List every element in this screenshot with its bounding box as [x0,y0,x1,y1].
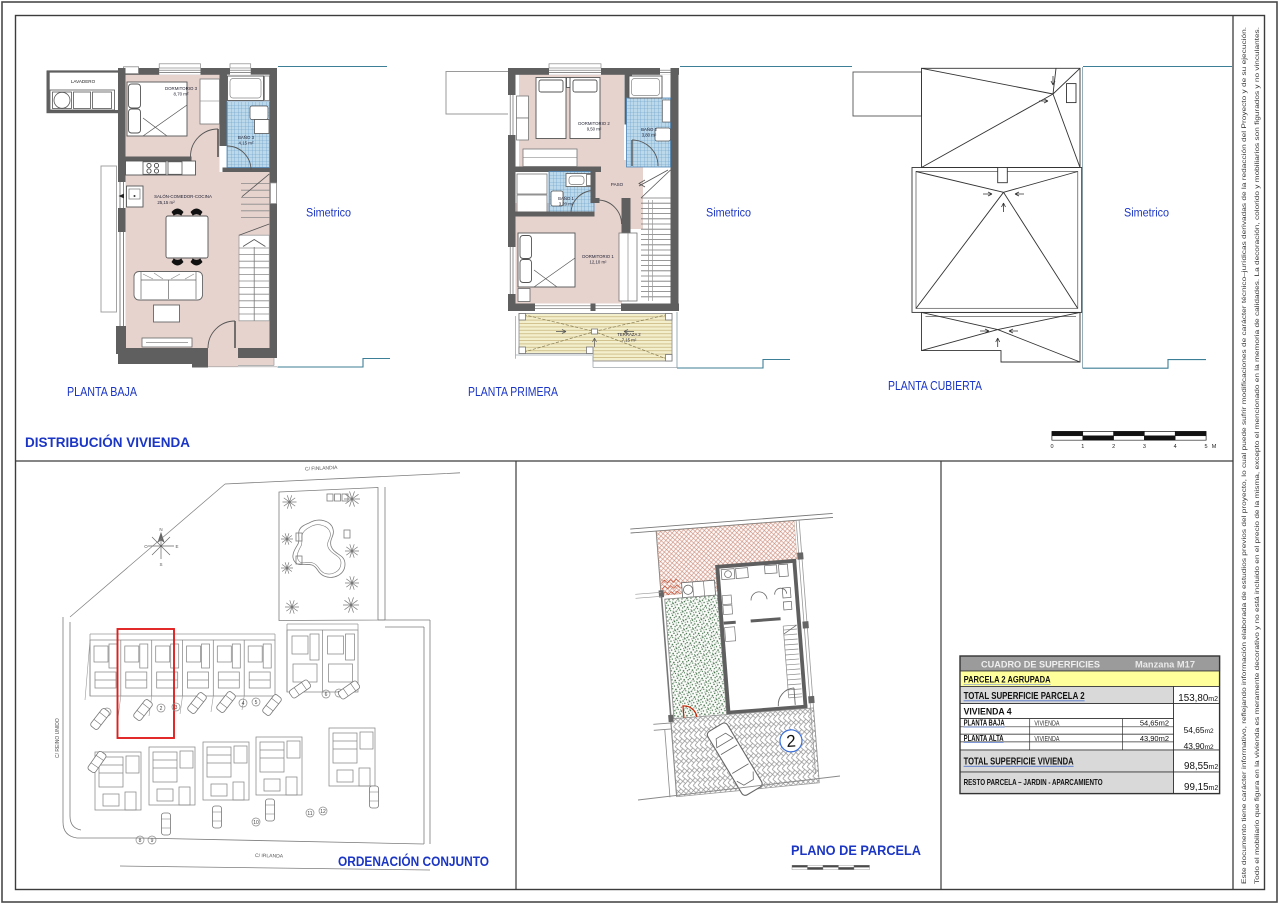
svg-text:3: 3 [175,705,178,711]
svg-text:LAVADERO: LAVADERO [71,79,96,84]
svg-text:7,15 m²: 7,15 m² [622,338,637,343]
svg-text:TOTAL SUPERFICIE PARCELA 2: TOTAL SUPERFICIE PARCELA 2 [964,691,1085,702]
svg-text:BAÑO 3: BAÑO 3 [238,135,255,140]
svg-text:25,15 m²: 25,15 m² [157,200,175,205]
svg-text:PLANO DE PARCELA: PLANO DE PARCELA [791,842,921,858]
svg-text:6: 6 [325,692,328,698]
svg-text:54,65m2: 54,65m2 [1140,719,1169,728]
svg-text:Manzana M17: Manzana M17 [1135,660,1195,671]
svg-text:S: S [159,562,162,567]
svg-text:DISTRIBUCIÓN VIVIENDA: DISTRIBUCIÓN VIVIENDA [25,435,190,450]
svg-text:11: 11 [307,811,312,817]
svg-text:VIVIENDA: VIVIENDA [1034,719,1059,728]
svg-text:43,90m2: 43,90m2 [1140,734,1169,743]
svg-text:2: 2 [160,706,163,712]
svg-text:DORMITORIO 3: DORMITORIO 3 [165,86,198,91]
svg-text:0: 0 [1050,444,1053,450]
svg-text:Simetrico: Simetrico [706,208,751,220]
svg-text:CUADRO DE SUPERFICIES: CUADRO DE SUPERFICIES [981,660,1100,671]
svg-text:PLANTA BAJA: PLANTA BAJA [67,385,138,399]
svg-text:C/ IRLANDA: C/ IRLANDA [255,853,284,860]
svg-text:RESTO PARCELA – JARDIN - APAR: RESTO PARCELA – JARDIN - APARCAMIENTO [964,778,1103,787]
svg-text:ORDENACIÓN CONJUNTO: ORDENACIÓN CONJUNTO [338,854,489,869]
svg-text:1: 1 [1081,444,1084,450]
svg-text:Simetrico: Simetrico [306,208,351,220]
svg-text:9: 9 [151,838,154,844]
svg-text:PLANTA PRIMERA: PLANTA PRIMERA [468,385,559,399]
svg-text:8: 8 [139,838,142,844]
svg-text:TERRAZA 2: TERRAZA 2 [617,332,641,337]
svg-text:4: 4 [242,701,245,707]
svg-text:10: 10 [253,820,259,826]
svg-text:PARCELA 2 AGRUPADA: PARCELA 2 AGRUPADA [964,675,1052,685]
svg-text:3: 3 [1143,444,1146,450]
svg-text:5: 5 [1204,444,1207,450]
svg-text:3,80 m²: 3,80 m² [642,133,657,138]
svg-text:DORMITORIO 2: DORMITORIO 2 [578,121,610,126]
svg-text:VIVIENDA 4: VIVIENDA 4 [964,707,1012,717]
svg-text:5: 5 [255,700,258,706]
svg-text:TOTAL SUPERFICIE VIVIENDA: TOTAL SUPERFICIE VIVIENDA [964,757,1074,768]
svg-text:DORMITORIO 1: DORMITORIO 1 [582,254,614,259]
svg-text:Este documento tiene carácter: Este documento tiene carácter informativ… [1241,27,1248,884]
svg-text:O: O [144,544,148,549]
svg-text:PLANTA ALTA: PLANTA ALTA [964,734,1004,743]
svg-text:BAÑO 1: BAÑO 1 [558,196,574,201]
svg-text:PLANTA BAJA: PLANTA BAJA [964,719,1005,728]
svg-text:N: N [159,527,162,532]
svg-text:C/ REINO UNIDO: C/ REINO UNIDO [55,718,61,758]
svg-text:4: 4 [1174,444,1177,450]
svg-text:Simetrico: Simetrico [1124,208,1169,220]
svg-text:E: E [175,544,178,549]
svg-text:2: 2 [786,731,797,751]
svg-text:4,15 m²: 4,15 m² [239,141,254,146]
svg-text:9,50 m²: 9,50 m² [587,127,602,132]
svg-text:PASO: PASO [611,182,624,187]
svg-text:Todo el mobiliario que figura: Todo el mobiliario que figura en la vivi… [1254,27,1261,884]
svg-text:SALÓN-COMEDOR-COCINA: SALÓN-COMEDOR-COCINA [154,194,212,199]
svg-text:M: M [1212,444,1217,450]
svg-text:12: 12 [320,809,326,815]
svg-text:12,10 m²: 12,10 m² [590,260,608,265]
svg-text:BAÑO 2: BAÑO 2 [641,127,657,132]
svg-text:VIVIENDA: VIVIENDA [1034,734,1059,743]
svg-text:2: 2 [1112,444,1115,450]
svg-text:PLANTA CUBIERTA: PLANTA CUBIERTA [888,379,983,393]
svg-text:8,70 m²: 8,70 m² [174,92,189,97]
svg-text:3,20 m²: 3,20 m² [559,202,574,207]
